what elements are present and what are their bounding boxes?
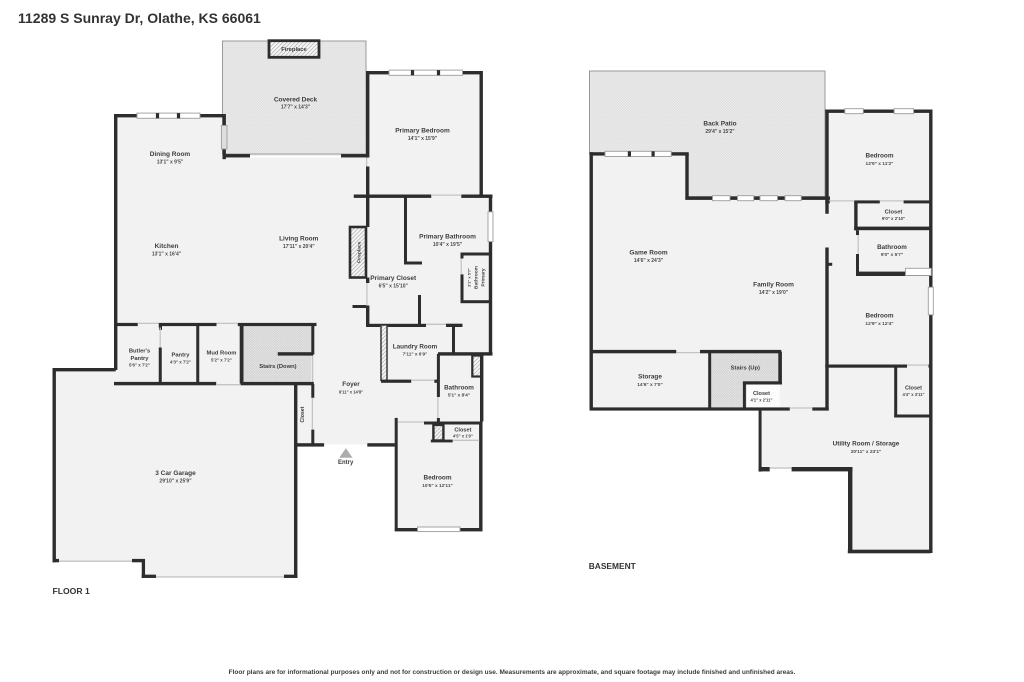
svg-text:5'2" x 7'2": 5'2" x 7'2" (211, 357, 232, 362)
svg-text:14'2" x 19'0": 14'2" x 19'0" (759, 290, 789, 296)
svg-text:Closet: Closet (905, 385, 922, 391)
svg-text:Bedroom: Bedroom (865, 153, 893, 160)
svg-text:Primary Closet: Primary Closet (370, 275, 417, 282)
svg-text:Closet: Closet (300, 406, 306, 422)
svg-text:Fireplace: Fireplace (357, 241, 363, 263)
svg-text:Foyer: Foyer (342, 381, 360, 388)
svg-text:17'11" x 20'4": 17'11" x 20'4" (283, 244, 315, 250)
svg-text:Pantry: Pantry (171, 353, 190, 359)
svg-text:Game Room: Game Room (629, 250, 668, 257)
svg-text:Stairs (Up): Stairs (Up) (731, 366, 760, 372)
svg-text:FLOOR 1: FLOOR 1 (53, 586, 90, 596)
svg-text:10'5" x 12'11": 10'5" x 12'11" (422, 483, 453, 489)
svg-text:Kitchen: Kitchen (155, 243, 179, 250)
svg-text:9'0" x 2'10": 9'0" x 2'10" (882, 216, 905, 221)
svg-text:Family Room: Family Room (753, 282, 794, 289)
svg-text:11289 S Sunray Dr, Olathe, KS: 11289 S Sunray Dr, Olathe, KS 66061 (18, 10, 261, 26)
svg-text:Bedroom: Bedroom (865, 313, 893, 320)
svg-text:4'5" x 1'9": 4'5" x 1'9" (453, 434, 473, 439)
svg-text:5'6" x 7'2": 5'6" x 7'2" (129, 362, 150, 367)
svg-text:Pantry: Pantry (130, 356, 149, 362)
svg-text:Primary Bedroom: Primary Bedroom (395, 128, 450, 135)
svg-text:Back Patio: Back Patio (703, 121, 736, 128)
svg-text:13'1" x 9'5": 13'1" x 9'5" (157, 160, 184, 166)
svg-text:3'1" x 5'7": 3'1" x 5'7" (467, 268, 472, 287)
svg-text:4'4" x 3'11": 4'4" x 3'11" (902, 392, 924, 397)
svg-text:Bedroom: Bedroom (423, 475, 451, 482)
svg-text:Bathroom: Bathroom (877, 244, 907, 251)
svg-text:Bathroom: Bathroom (474, 265, 480, 289)
svg-text:Stairs (Down): Stairs (Down) (259, 364, 296, 370)
svg-text:Closet: Closet (454, 427, 471, 433)
svg-text:9'11" x 14'8": 9'11" x 14'8" (339, 389, 363, 394)
svg-text:10'4" x 19'5": 10'4" x 19'5" (433, 242, 463, 248)
svg-text:12'9" x 11'2": 12'9" x 11'2" (866, 161, 894, 167)
svg-text:14'1" x 15'9": 14'1" x 15'9" (408, 136, 438, 142)
svg-text:Storage: Storage (638, 374, 662, 381)
svg-text:Mud Room: Mud Room (207, 351, 237, 357)
svg-text:20'11" x 23'1": 20'11" x 23'1" (851, 449, 882, 455)
svg-text:Fireplace: Fireplace (281, 47, 307, 53)
svg-text:14'6" x 24'3": 14'6" x 24'3" (634, 258, 664, 264)
svg-text:Living Room: Living Room (279, 236, 319, 243)
svg-text:29'10" x 25'9": 29'10" x 25'9" (159, 479, 192, 485)
svg-text:9'0" x 5'7": 9'0" x 5'7" (881, 252, 903, 257)
svg-text:14'6" x 7'0": 14'6" x 7'0" (637, 382, 663, 388)
svg-text:BASEMENT: BASEMENT (589, 561, 637, 571)
svg-text:Closet: Closet (753, 391, 770, 397)
svg-text:Dining Room: Dining Room (150, 151, 191, 158)
svg-text:Closet: Closet (885, 210, 903, 216)
svg-text:Butler's: Butler's (129, 349, 150, 355)
svg-text:Floor plans are for informatio: Floor plans are for informational purpos… (229, 669, 796, 676)
svg-text:3 Car Garage: 3 Car Garage (155, 470, 196, 477)
svg-text:29'4" x 15'2": 29'4" x 15'2" (705, 129, 735, 135)
svg-text:12'9" x 12'4": 12'9" x 12'4" (865, 321, 893, 327)
svg-text:Primary Bathroom: Primary Bathroom (419, 234, 476, 241)
svg-text:Laundry Room: Laundry Room (393, 344, 438, 351)
svg-text:Entry: Entry (338, 460, 354, 466)
svg-text:Utility Room / Storage: Utility Room / Storage (833, 441, 900, 448)
svg-text:4'1" x 2'11": 4'1" x 2'11" (750, 398, 772, 403)
svg-text:Covered Deck: Covered Deck (274, 97, 318, 104)
svg-text:13'1" x 16'4": 13'1" x 16'4" (152, 252, 182, 258)
svg-text:Bathroom: Bathroom (444, 385, 474, 392)
svg-text:17'7" x 14'3": 17'7" x 14'3" (281, 105, 311, 111)
svg-text:6'5" x 15'10": 6'5" x 15'10" (379, 284, 409, 290)
svg-text:Primary: Primary (481, 268, 487, 286)
svg-text:5'1" x 8'4": 5'1" x 8'4" (448, 393, 470, 398)
svg-text:7'11" x 6'9": 7'11" x 6'9" (403, 352, 428, 357)
svg-text:4'3" x 7'2": 4'3" x 7'2" (170, 359, 191, 364)
